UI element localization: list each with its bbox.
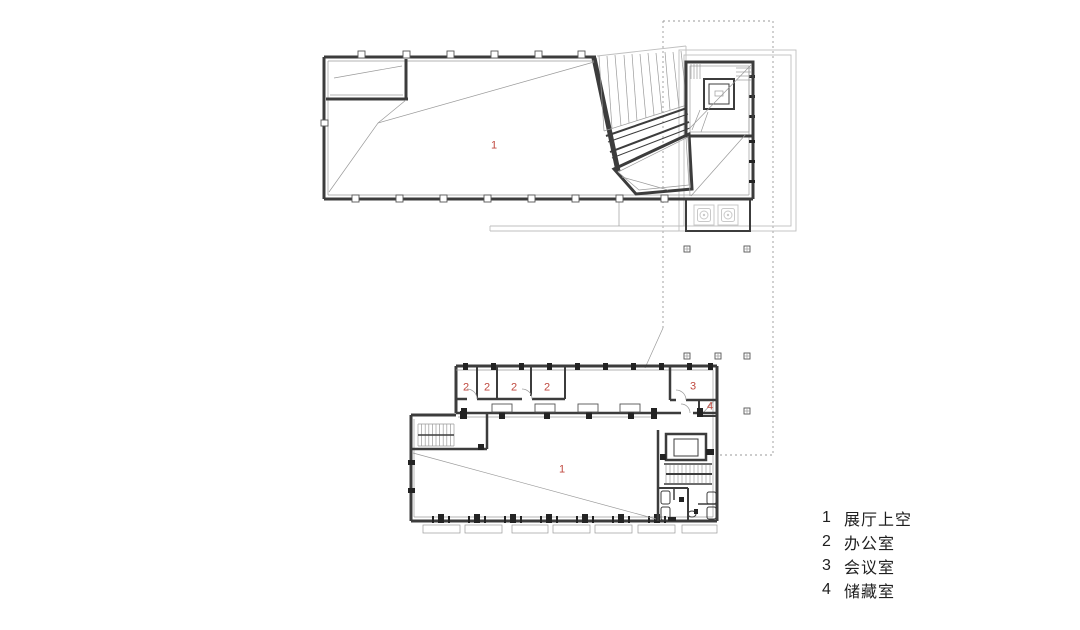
restrooms (658, 488, 717, 521)
room-label-exhibition: 1 (559, 465, 565, 476)
elevator (660, 434, 714, 460)
skylight (718, 205, 738, 225)
room-label-office: 2 (544, 383, 550, 394)
service-stair (664, 464, 712, 484)
column-marker (715, 353, 721, 359)
exhibition-sight-line (413, 453, 656, 519)
legend: 1 展厅上空 2 办公室 3 会议室 4 储藏室 (822, 506, 912, 602)
column-marker (744, 408, 750, 414)
room-label-exhibition-void: 1 (491, 141, 497, 152)
elevator-shaft (704, 79, 734, 109)
legend-item: 4 储藏室 (822, 578, 912, 602)
column-marker (684, 353, 690, 359)
room-label-meeting: 3 (690, 382, 696, 393)
upper-left-room (326, 59, 408, 99)
legend-item-number: 1 (822, 509, 844, 527)
legend-item-label: 会议室 (844, 554, 895, 578)
room-label-office: 2 (463, 383, 469, 394)
lower-plan (408, 363, 717, 533)
exterior-steps (423, 525, 717, 533)
drawing-canvas: 1 1 2 2 2 2 3 4 1 展厅上空 2 办公室 3 会议室 4 储藏室 (0, 0, 1080, 630)
legend-item: 2 办公室 (822, 530, 912, 554)
winder-stair (689, 64, 751, 132)
room-label-office: 2 (511, 383, 517, 394)
column-marker (744, 246, 750, 252)
legend-item-label: 办公室 (844, 530, 895, 554)
upper-plan (321, 51, 755, 231)
column-marker (744, 353, 750, 359)
void-sight-lines (329, 62, 594, 192)
grand-stair (599, 51, 692, 194)
corridor-wall (456, 404, 717, 419)
legend-item-label: 储藏室 (844, 578, 895, 602)
legend-item-label: 展厅上空 (844, 506, 912, 530)
column-marker (684, 246, 690, 252)
legend-item-number: 4 (822, 581, 844, 599)
room-label-office: 2 (484, 383, 490, 394)
legend-item: 3 会议室 (822, 554, 912, 578)
skylight (694, 205, 714, 225)
room-label-storage: 4 (707, 402, 713, 413)
floor-plan-drawing (0, 0, 1080, 630)
service-core (658, 430, 717, 521)
legend-item: 1 展厅上空 (822, 506, 912, 530)
legend-item-number: 3 (822, 557, 844, 575)
elevator-core (686, 62, 753, 196)
legend-item-number: 2 (822, 533, 844, 551)
